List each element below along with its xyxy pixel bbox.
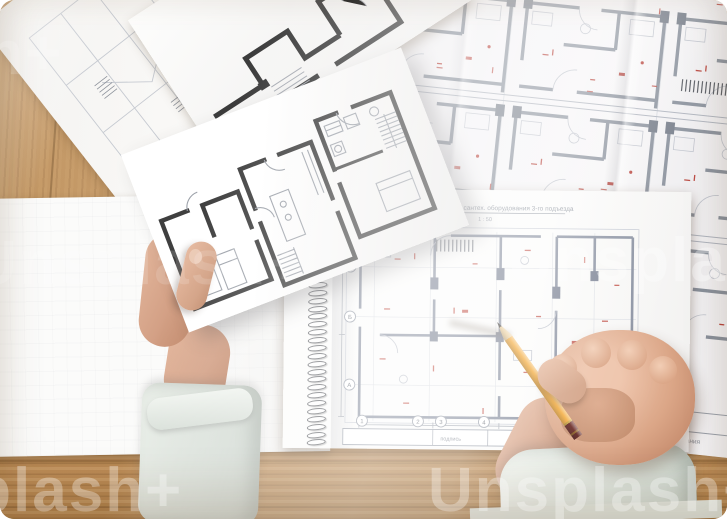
titleblock-label: подпись (440, 437, 461, 443)
knuckle (581, 338, 611, 368)
knuckle (617, 340, 647, 370)
knuckle (649, 356, 677, 384)
pad-plan-scale: 1 : 50 (478, 217, 492, 223)
axis-letter: Б (348, 315, 352, 321)
left-thumb-nail (189, 249, 202, 264)
photo-architect-desk: Зона сантехоборудования (0, 0, 727, 519)
axis-letter: А (347, 383, 351, 389)
